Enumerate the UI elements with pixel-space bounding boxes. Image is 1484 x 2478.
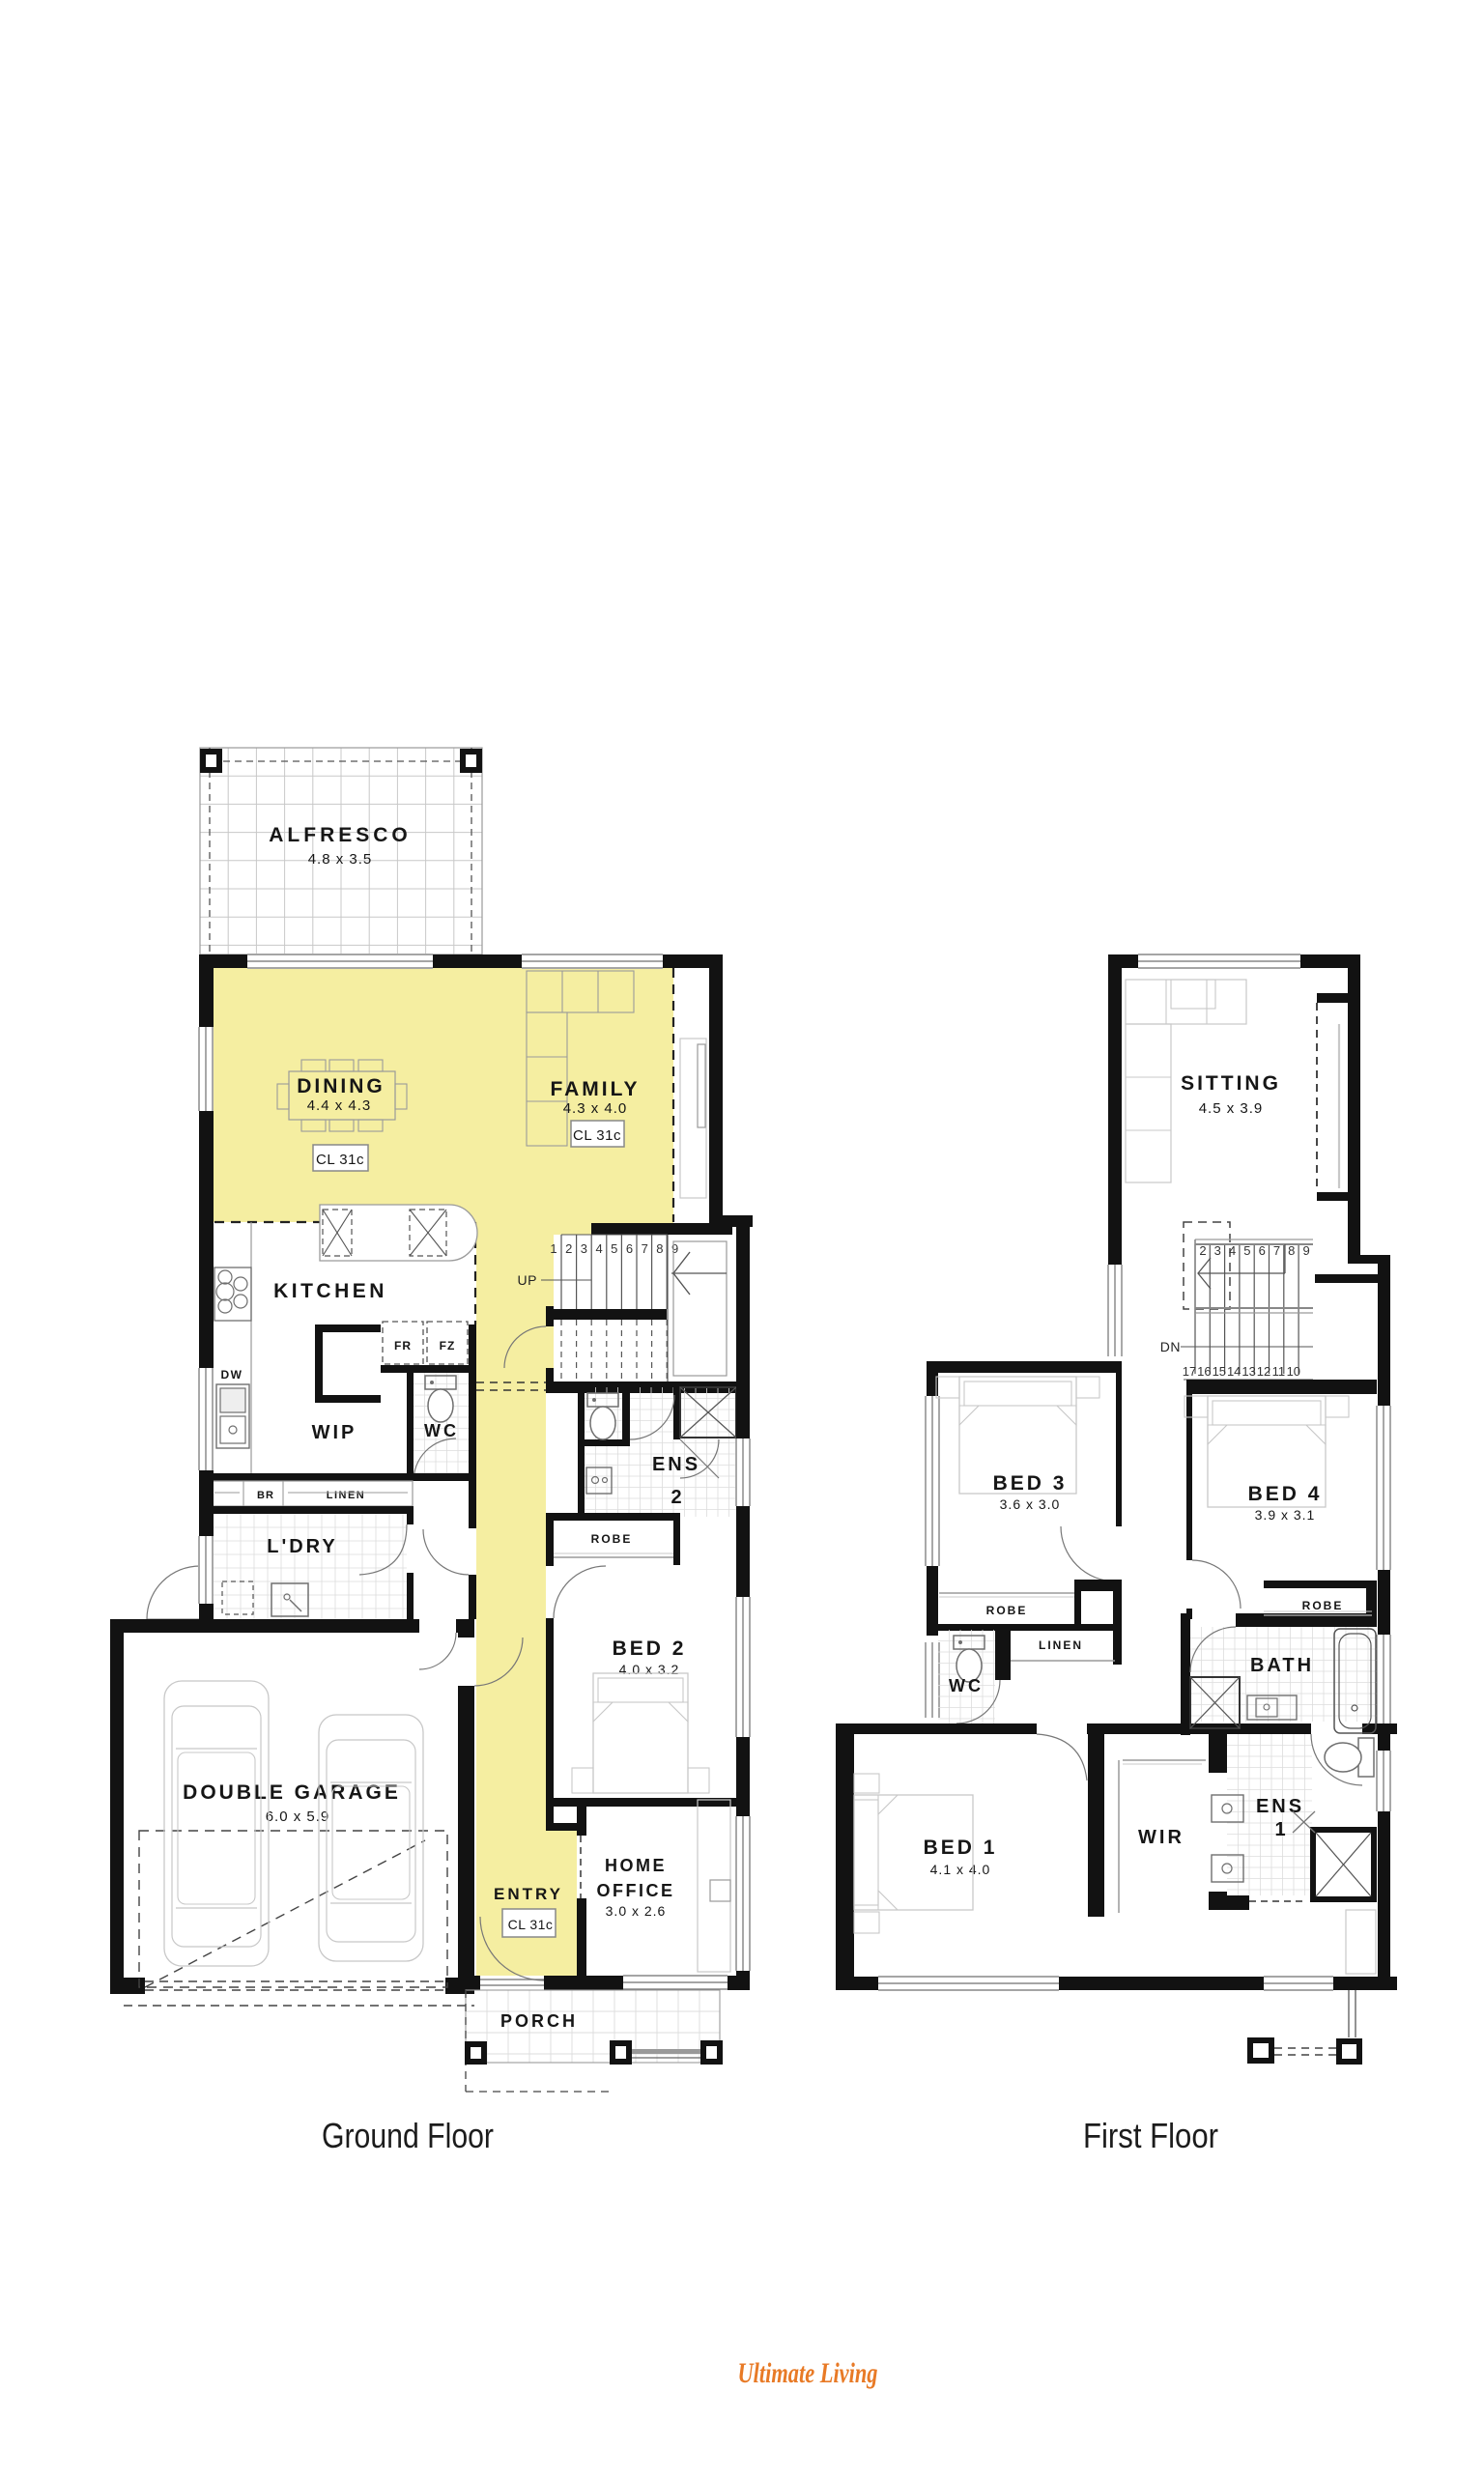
svg-text:10: 10 (1287, 1364, 1300, 1379)
svg-text:2: 2 (1199, 1243, 1206, 1258)
svg-text:2: 2 (671, 1487, 681, 1508)
svg-text:12: 12 (1257, 1364, 1270, 1379)
svg-text:11: 11 (1272, 1364, 1286, 1379)
svg-text:6.0 x 5.9: 6.0 x 5.9 (266, 1809, 330, 1825)
svg-text:CL 31c: CL 31c (316, 1152, 364, 1168)
svg-text:WIP: WIP (312, 1422, 357, 1443)
svg-text:FZ: FZ (440, 1339, 456, 1353)
svg-text:3.0 x 2.6: 3.0 x 2.6 (606, 1903, 667, 1919)
svg-text:16: 16 (1197, 1364, 1211, 1379)
svg-text:LINEN: LINEN (1039, 1638, 1083, 1652)
svg-text:BED 4: BED 4 (1248, 1483, 1323, 1505)
svg-text:4.0 x 3.2: 4.0 x 3.2 (619, 1662, 680, 1677)
svg-text:DINING: DINING (297, 1075, 385, 1097)
svg-text:LINEN: LINEN (327, 1490, 366, 1501)
svg-text:1: 1 (1274, 1819, 1285, 1840)
svg-text:1: 1 (550, 1241, 556, 1256)
svg-text:WC: WC (424, 1421, 459, 1440)
svg-text:Ground Floor: Ground Floor (322, 2116, 494, 2155)
svg-text:L'DRY: L'DRY (267, 1536, 337, 1557)
svg-text:BR: BR (257, 1490, 274, 1501)
svg-text:HOME: HOME (605, 1856, 667, 1875)
svg-text:ENS: ENS (652, 1454, 700, 1475)
svg-text:6: 6 (626, 1241, 633, 1256)
svg-text:ENTRY: ENTRY (494, 1885, 563, 1903)
svg-text:BATH: BATH (1250, 1655, 1314, 1676)
svg-text:ROBE: ROBE (986, 1604, 1028, 1617)
svg-text:7: 7 (1273, 1243, 1280, 1258)
svg-text:BED 1: BED 1 (924, 1837, 998, 1859)
svg-text:ROBE: ROBE (1302, 1599, 1344, 1612)
svg-text:WIR: WIR (1138, 1827, 1184, 1848)
svg-text:17: 17 (1183, 1364, 1196, 1379)
svg-text:5: 5 (611, 1241, 617, 1256)
svg-text:ROBE: ROBE (591, 1532, 633, 1546)
svg-text:4.1 x 4.0: 4.1 x 4.0 (930, 1862, 991, 1877)
svg-text:BED 2: BED 2 (613, 1638, 687, 1660)
svg-text:FR: FR (394, 1339, 412, 1353)
svg-text:9: 9 (671, 1241, 678, 1256)
svg-text:DW: DW (221, 1368, 243, 1381)
svg-text:PORCH: PORCH (500, 2011, 578, 2031)
svg-text:6: 6 (1259, 1243, 1266, 1258)
svg-text:OFFICE: OFFICE (597, 1881, 675, 1900)
svg-text:KITCHEN: KITCHEN (273, 1280, 387, 1302)
svg-text:9: 9 (1302, 1243, 1309, 1258)
svg-text:WC: WC (949, 1676, 984, 1695)
svg-text:3: 3 (581, 1241, 587, 1256)
svg-text:8: 8 (1288, 1243, 1295, 1258)
svg-text:SITTING: SITTING (1181, 1072, 1281, 1095)
svg-text:First Floor: First Floor (1083, 2116, 1218, 2155)
svg-text:BED 3: BED 3 (993, 1472, 1068, 1495)
svg-text:4.3 x 4.0: 4.3 x 4.0 (563, 1100, 628, 1117)
svg-text:4.4 x 4.3: 4.4 x 4.3 (307, 1097, 372, 1114)
svg-text:3.6 x 3.0: 3.6 x 3.0 (1000, 1496, 1061, 1512)
svg-text:7: 7 (642, 1241, 648, 1256)
svg-text:13: 13 (1241, 1364, 1255, 1379)
svg-text:14: 14 (1227, 1364, 1241, 1379)
svg-text:4.5 x 3.9: 4.5 x 3.9 (1199, 1100, 1264, 1117)
svg-text:DOUBLE GARAGE: DOUBLE GARAGE (183, 1781, 401, 1804)
svg-text:4: 4 (595, 1241, 602, 1256)
svg-text:DN: DN (1160, 1339, 1181, 1354)
svg-text:2: 2 (565, 1241, 572, 1256)
svg-text:15: 15 (1213, 1364, 1226, 1379)
svg-text:CL 31c: CL 31c (508, 1917, 554, 1932)
svg-text:ENS: ENS (1256, 1796, 1304, 1817)
svg-text:4: 4 (1229, 1243, 1236, 1258)
svg-text:FAMILY: FAMILY (550, 1078, 640, 1100)
svg-text:5: 5 (1243, 1243, 1250, 1258)
svg-text:4.8 x 3.5: 4.8 x 3.5 (308, 851, 373, 868)
svg-text:CL 31c: CL 31c (573, 1127, 621, 1144)
svg-text:ALFRESCO: ALFRESCO (269, 824, 412, 846)
svg-text:UP: UP (518, 1272, 537, 1288)
svg-text:3.9 x 3.1: 3.9 x 3.1 (1255, 1507, 1316, 1523)
svg-text:3: 3 (1214, 1243, 1221, 1258)
svg-text:Ultimate Living: Ultimate Living (738, 2357, 878, 2389)
svg-text:8: 8 (656, 1241, 663, 1256)
